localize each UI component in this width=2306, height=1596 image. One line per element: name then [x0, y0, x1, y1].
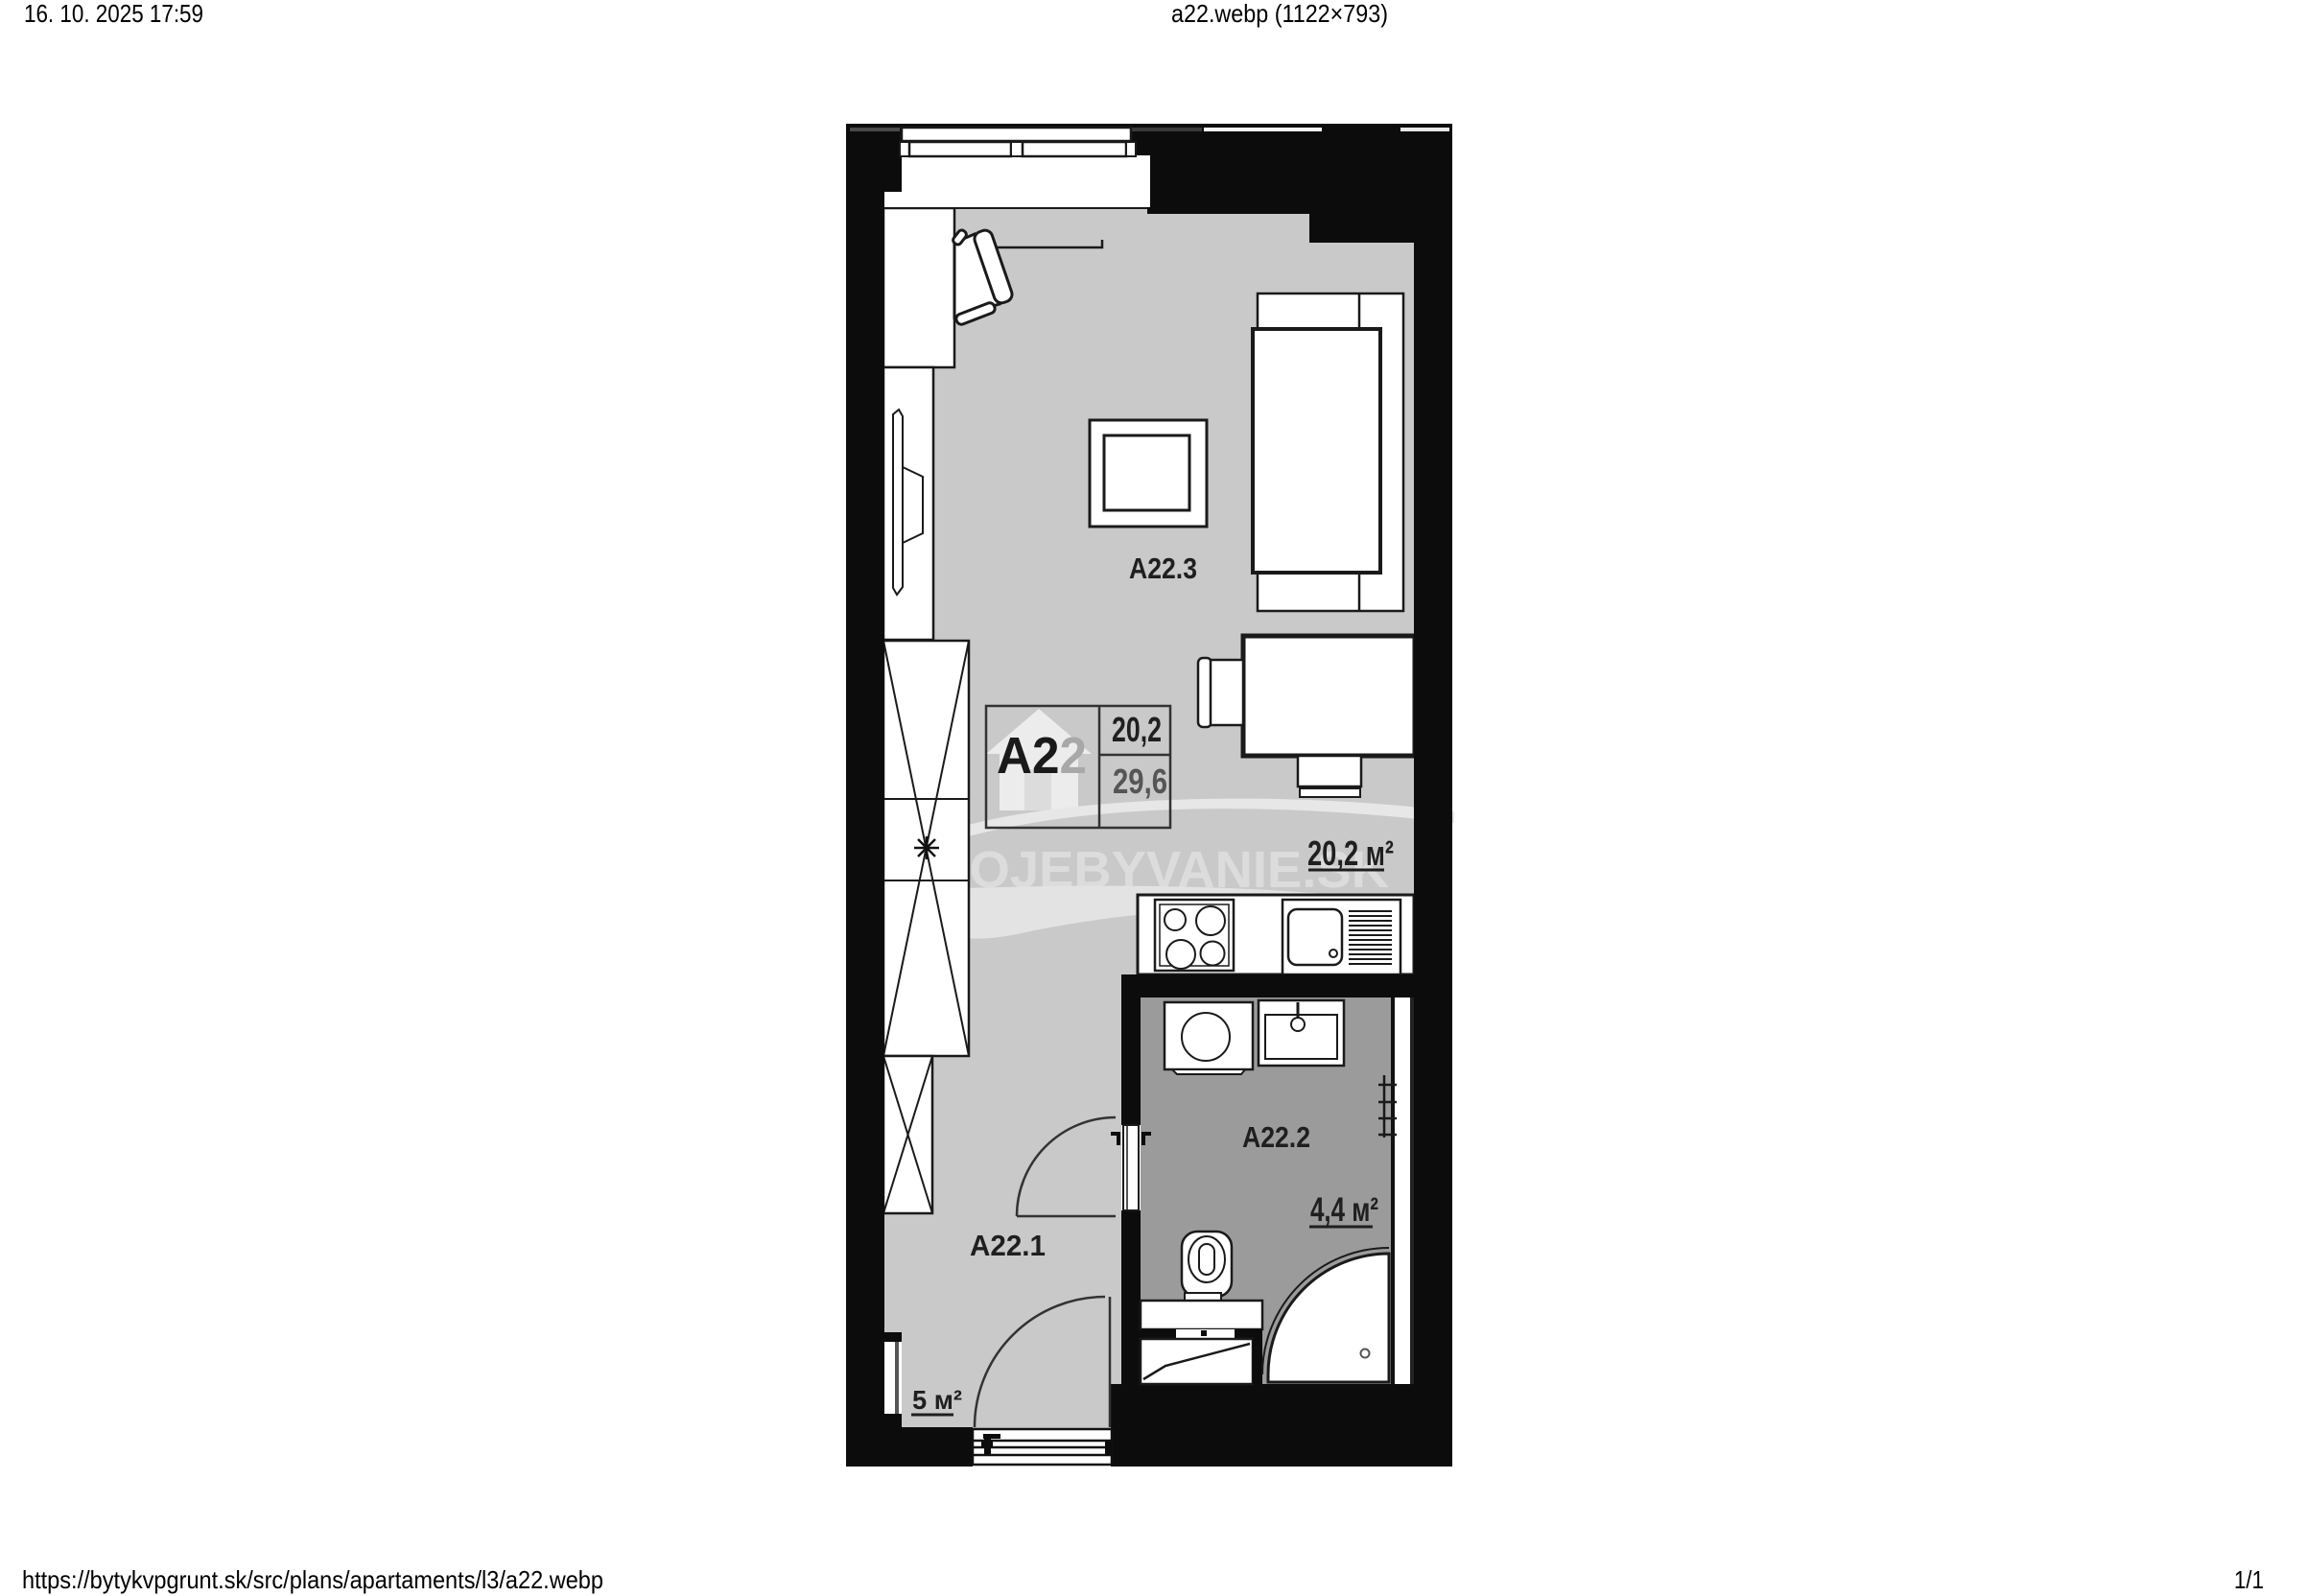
svg-text:5 м²: 5 м² [912, 1385, 962, 1415]
svg-text:4,4 м²: 4,4 м² [1310, 1191, 1378, 1229]
svg-text:https://bytykvpgrunt.sk/src/pl: https://bytykvpgrunt.sk/src/plans/aparta… [22, 1565, 603, 1594]
svg-text:a22.webp (1122×793): a22.webp (1122×793) [1171, 0, 1388, 28]
svg-text:20,2 м²: 20,2 м² [1307, 833, 1394, 873]
svg-text:A22.3: A22.3 [1129, 552, 1197, 585]
svg-text:A22.1: A22.1 [970, 1229, 1046, 1262]
svg-text:A22.2: A22.2 [1242, 1120, 1310, 1154]
svg-text:29,6: 29,6 [1113, 762, 1167, 801]
svg-text:20,2: 20,2 [1112, 710, 1162, 749]
svg-text:16. 10. 2025 17:59: 16. 10. 2025 17:59 [24, 0, 203, 28]
svg-text:A22: A22 [997, 727, 1087, 785]
svg-text:1/1: 1/1 [2234, 1565, 2264, 1594]
